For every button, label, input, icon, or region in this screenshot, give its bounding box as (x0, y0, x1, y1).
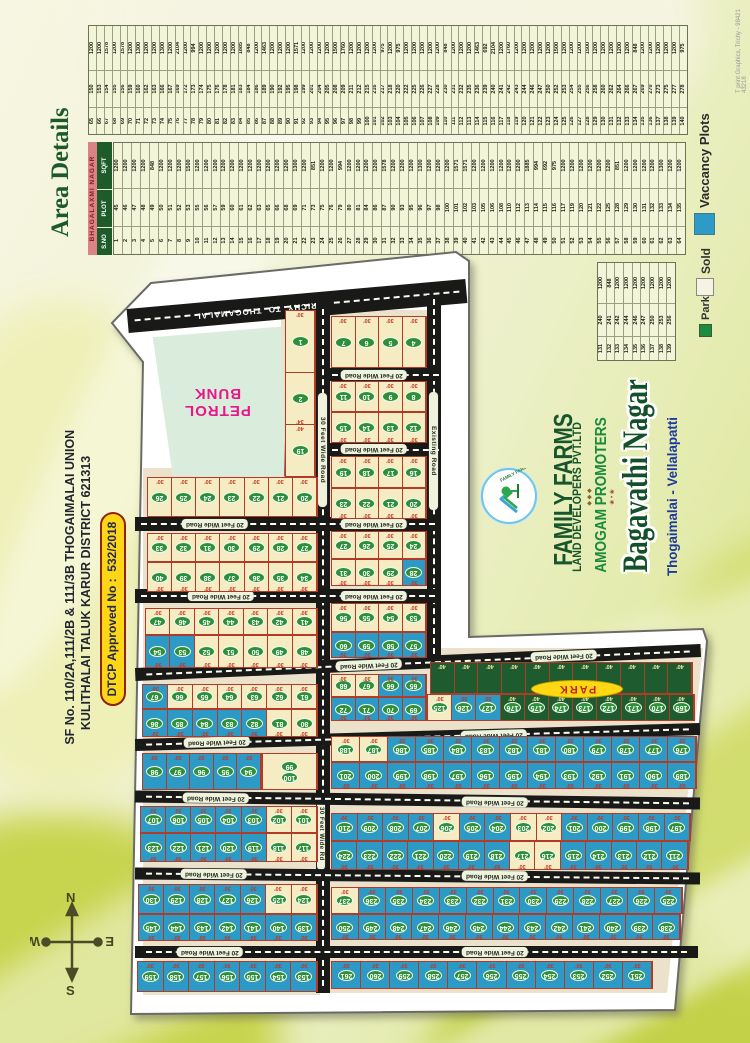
svg-text:S: S (66, 983, 75, 998)
svg-text:W: W (30, 934, 40, 949)
svg-text:N: N (66, 890, 75, 905)
svg-text:E: E (105, 934, 114, 949)
